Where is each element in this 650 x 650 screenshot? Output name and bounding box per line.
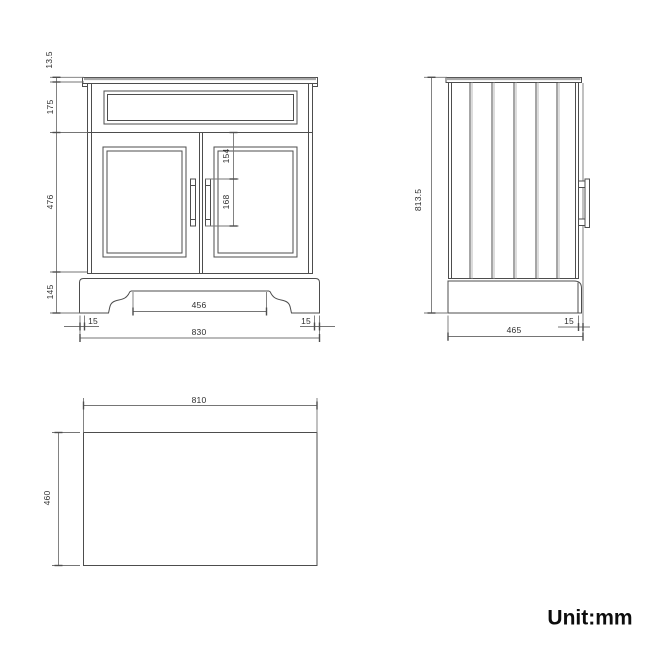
dim-label-door-height: 476 xyxy=(46,195,55,210)
dim-label-handle-top-offset: 154 xyxy=(222,149,231,164)
front-view-drawing xyxy=(80,78,320,314)
dim-label-bottom-left-inset: 15 xyxy=(88,317,98,326)
dim-label-handle-height: 168 xyxy=(222,195,231,210)
front-right-door-handle xyxy=(206,179,211,226)
technical-drawing-page: 13.5 175 476 145 154 168 456 15 15 830 8… xyxy=(0,0,650,650)
dim-label-top-rail-height: 175 xyxy=(46,100,55,115)
top-view-drawing xyxy=(84,433,318,566)
top-view-outline xyxy=(84,433,318,566)
side-plinth xyxy=(448,281,582,313)
unit-label: Unit:mm xyxy=(547,608,632,629)
front-left-door-handle xyxy=(191,179,196,226)
dim-label-plinth-cutout-width: 456 xyxy=(192,301,207,310)
side-door-handle xyxy=(579,179,590,228)
dim-label-plinth-height: 145 xyxy=(46,285,55,300)
dim-label-bottom-right-inset: 15 xyxy=(301,317,311,326)
side-view-drawing xyxy=(446,78,590,342)
dim-label-overall-height: 813.5 xyxy=(414,189,423,211)
dim-label-side-front-inset: 15 xyxy=(564,317,574,326)
dim-label-overall-width: 830 xyxy=(192,328,207,337)
dim-label-top-depth: 460 xyxy=(43,491,52,506)
dim-label-overall-depth: 465 xyxy=(507,326,522,335)
dim-label-countertop-thickness: 13.5 xyxy=(45,51,54,68)
dim-label-top-width: 810 xyxy=(192,396,207,405)
